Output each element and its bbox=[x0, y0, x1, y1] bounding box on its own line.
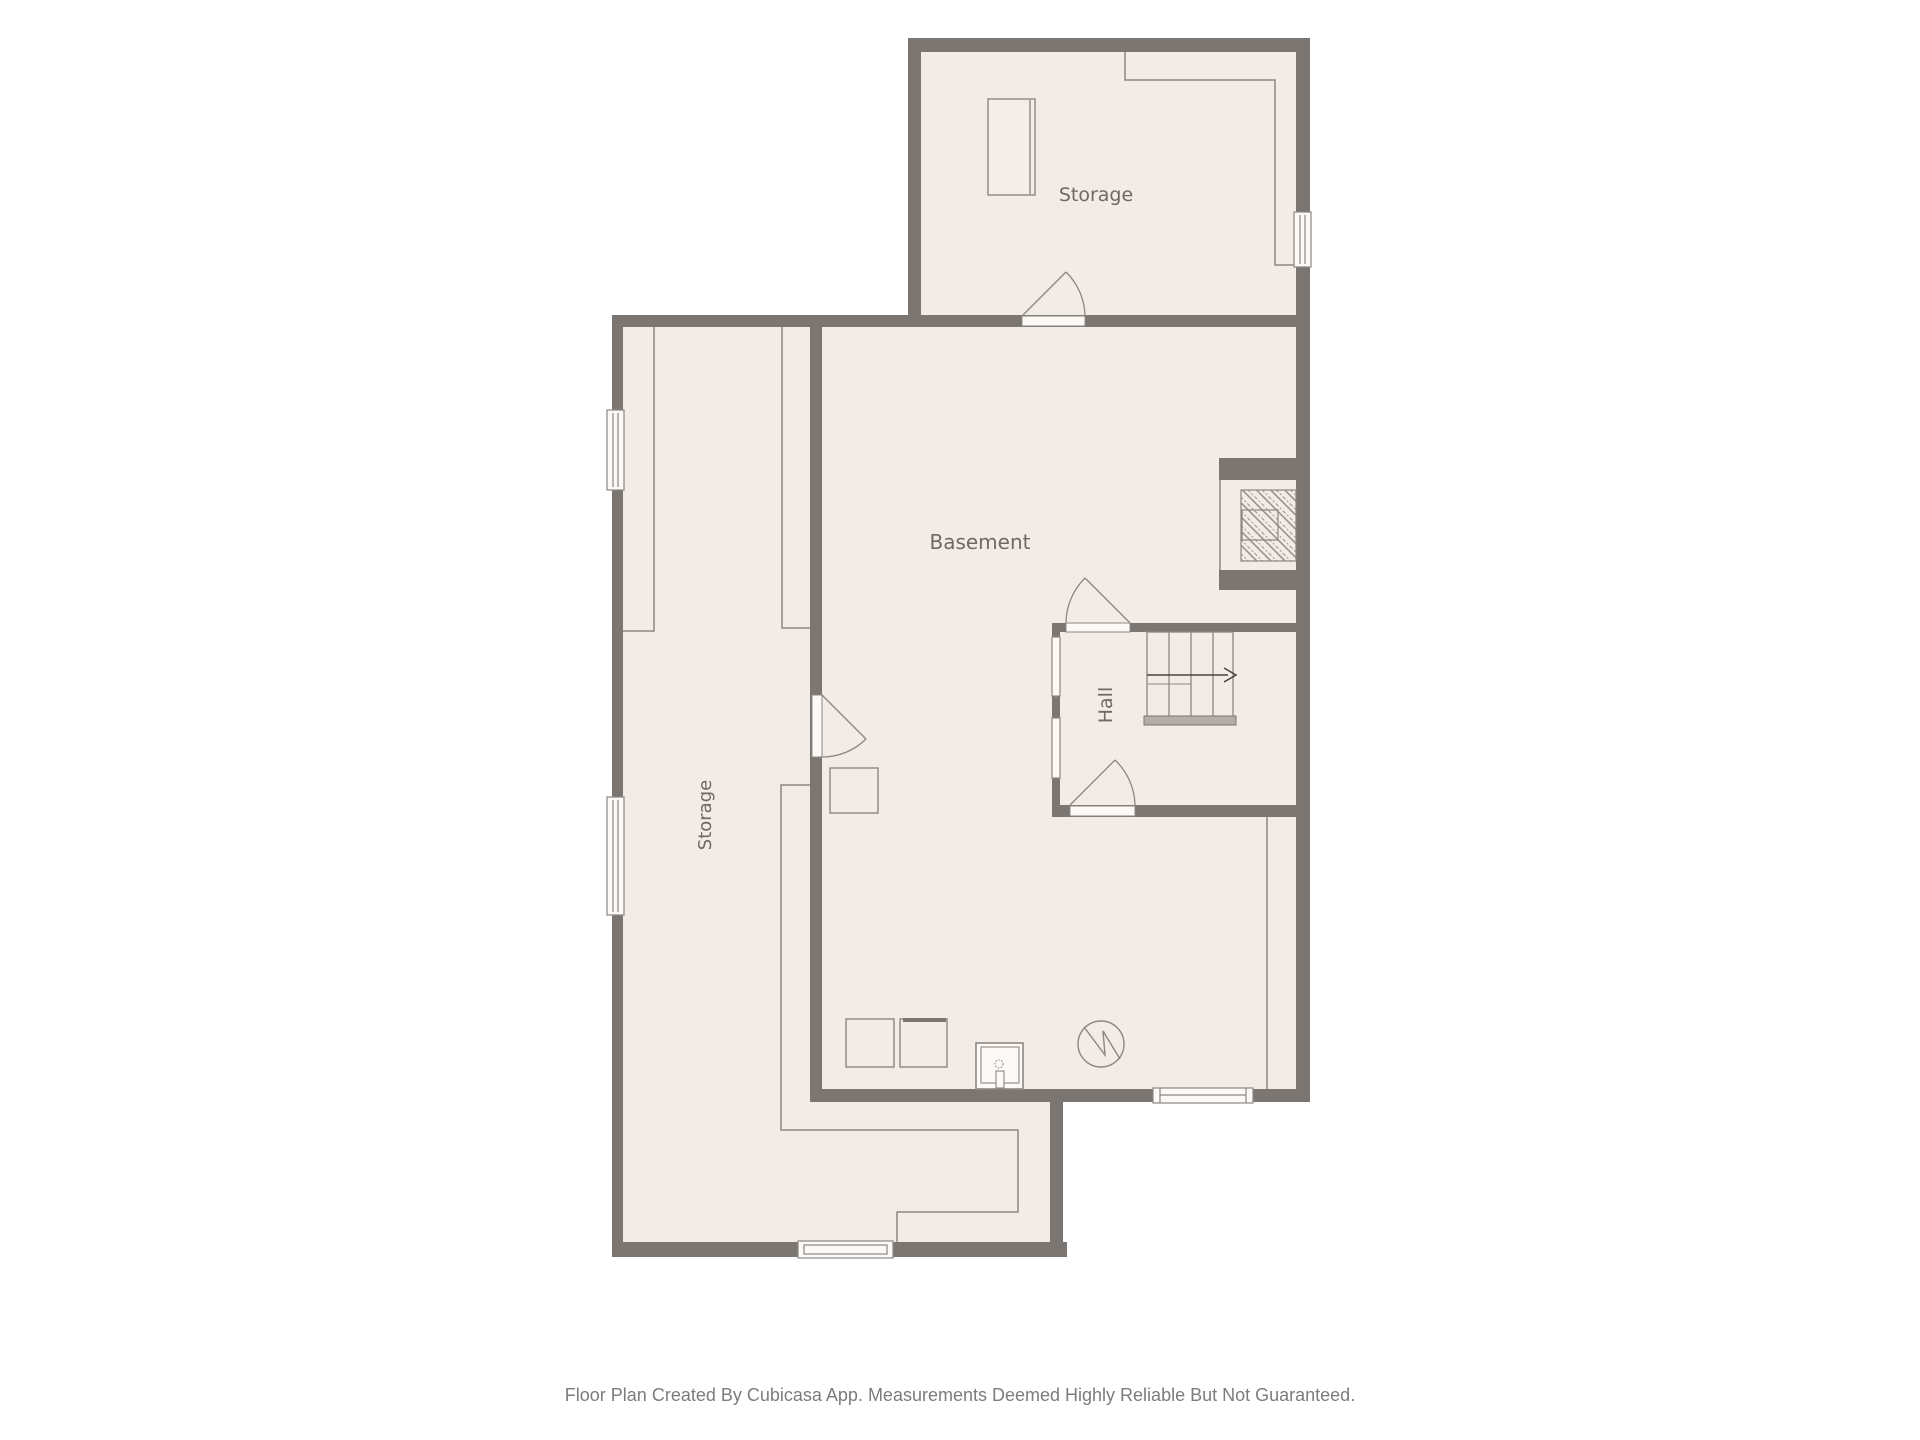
caption: Floor Plan Created By Cubicasa App. Meas… bbox=[565, 1385, 1355, 1405]
utility-box-icon bbox=[976, 1043, 1023, 1089]
label-hall: Hall bbox=[1095, 687, 1117, 724]
wall-opening bbox=[1052, 637, 1060, 696]
chimney-hatch bbox=[1241, 490, 1296, 561]
label-storage-left: Storage bbox=[695, 780, 716, 850]
label-storage-top: Storage bbox=[1059, 184, 1133, 206]
window-left-lower bbox=[607, 797, 624, 915]
wall-top-room-left bbox=[908, 38, 921, 327]
label-basement: Basement bbox=[929, 530, 1030, 554]
window-left-upper bbox=[607, 410, 624, 490]
wall-storage-right-lower bbox=[1050, 1089, 1063, 1257]
wall-chimney-stub-top bbox=[1219, 458, 1296, 480]
shelving-unit bbox=[988, 99, 1035, 195]
appliance-right bbox=[900, 1018, 947, 1067]
stair-start-bar bbox=[1144, 716, 1236, 725]
wall-right-outer bbox=[1296, 38, 1310, 1102]
floor-areas bbox=[623, 52, 1296, 1242]
window-storage-bottom bbox=[798, 1241, 893, 1258]
appliance-square bbox=[830, 768, 878, 813]
wall-opening bbox=[1052, 718, 1060, 778]
floorplan-page: Storage Basement Hall Storage Floor Plan… bbox=[0, 0, 1920, 1440]
wall-hall-left-pier-3 bbox=[1052, 778, 1060, 817]
wall-chimney-stub-bottom bbox=[1219, 570, 1296, 590]
floorplan-svg: Storage Basement Hall Storage Floor Plan… bbox=[0, 0, 1920, 1440]
window-basement-bottom bbox=[1153, 1088, 1253, 1103]
wall-hall-left-pier-1 bbox=[1052, 623, 1060, 637]
appliance-left bbox=[846, 1019, 894, 1067]
wall-top-room-top bbox=[908, 38, 1310, 52]
wall-main-horizontal bbox=[612, 315, 1310, 327]
window-storage-top-right bbox=[1294, 212, 1311, 267]
wall-hall-left-pier-2 bbox=[1052, 696, 1060, 718]
